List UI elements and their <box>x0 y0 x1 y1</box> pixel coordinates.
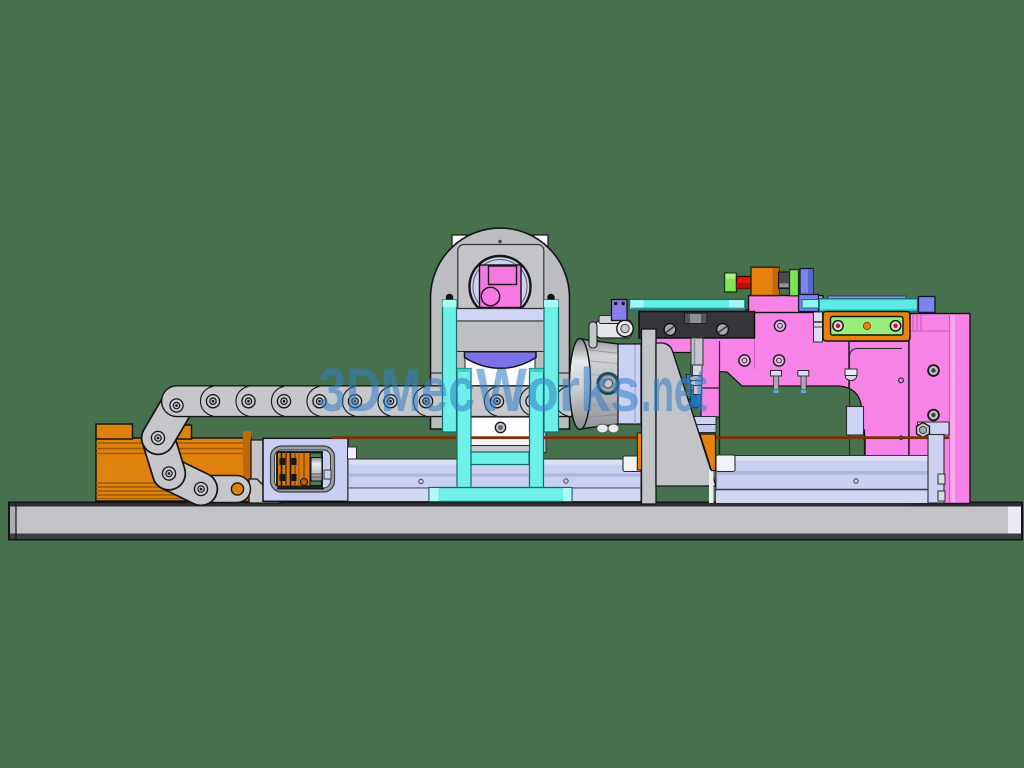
svg-text:.net: .net <box>641 356 707 424</box>
svg-text:Works: Works <box>476 356 640 424</box>
svg-text:3DMec: 3DMec <box>319 356 475 424</box>
